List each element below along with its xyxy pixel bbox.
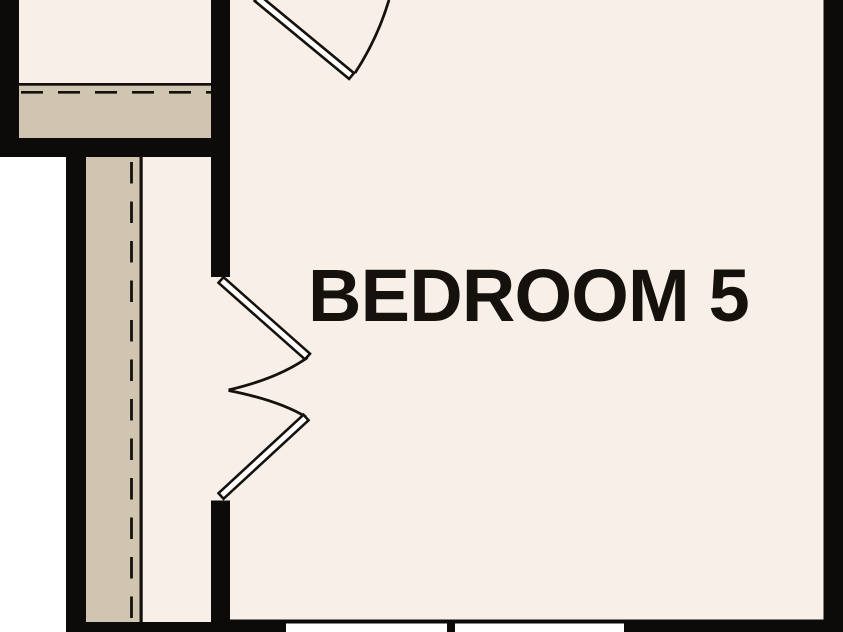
- svg-text:BEDROOM 5: BEDROOM 5: [308, 254, 749, 337]
